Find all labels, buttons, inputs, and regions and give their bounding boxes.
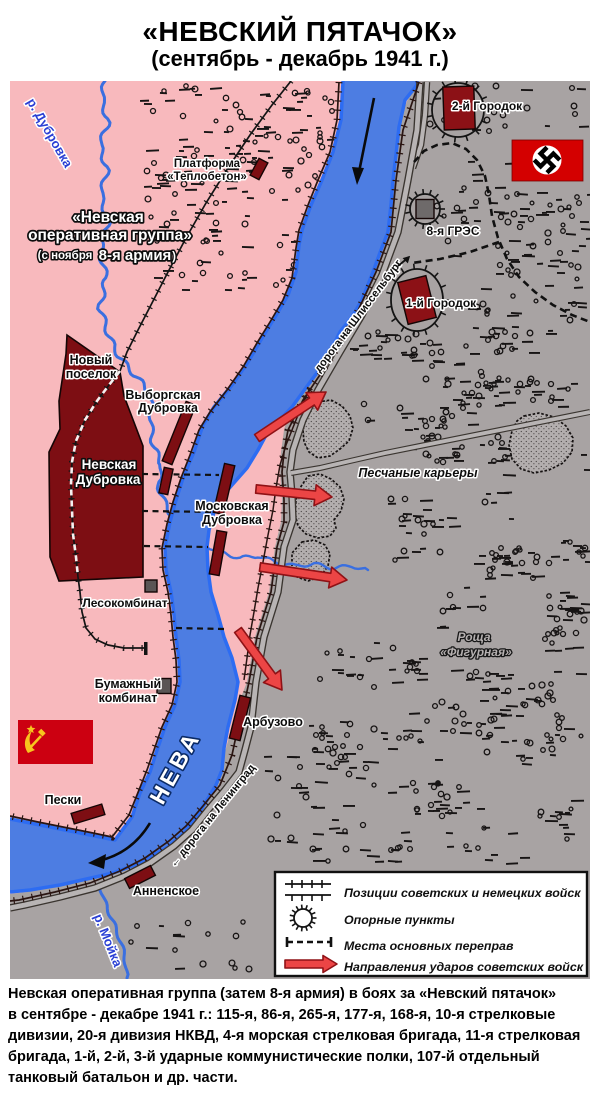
svg-text:8-я армия: 8-я армия [99,247,172,264]
svg-text:поселок: поселок [66,367,117,381]
svg-text:Пески: Пески [45,793,82,807]
svg-text:8-я ГРЭС: 8-я ГРЭС [426,224,479,238]
svg-text:Позиции советских и немецких в: Позиции советских и немецких войск [344,886,581,900]
svg-text:Арбузово: Арбузово [243,715,303,729]
svg-text:Опорные пункты: Опорные пункты [344,913,455,927]
svg-text:Выборгская: Выборгская [125,388,200,402]
svg-text:Роща: Роща [457,630,490,644]
svg-text:Платформа: Платформа [174,158,241,170]
svg-text:Дубровка: Дубровка [138,401,199,415]
svg-text:оперативная группа»: оперативная группа» [28,227,192,244]
svg-text:(с ноября: (с ноября [38,250,93,262]
svg-text:«Фигурная»: «Фигурная» [440,645,512,659]
svg-text:Дубровка: Дубровка [202,513,263,527]
svg-text:): ) [172,251,176,263]
svg-text:Бумажный: Бумажный [95,677,161,691]
svg-text:1-й Городок: 1-й Городок [406,296,477,310]
svg-text:Песчаные карьеры: Песчаные карьеры [358,466,478,480]
svg-text:Новый: Новый [70,353,113,367]
svg-text:2-й Городок: 2-й Городок [452,99,523,113]
svg-text:Анненское: Анненское [133,884,199,898]
svg-text:Места основных переправ: Места основных переправ [344,939,514,953]
svg-text:Лесокомбинат: Лесокомбинат [82,596,167,610]
svg-text:Дубровка: Дубровка [76,472,141,487]
svg-text:Направления ударов советских в: Направления ударов советских войск [344,960,584,974]
svg-text:комбинат: комбинат [99,691,158,705]
svg-text:«Невская: «Невская [72,209,144,226]
svg-text:Московская: Московская [195,499,268,513]
svg-text:«Теплобетон»: «Теплобетон» [167,171,247,183]
svg-text:Невская: Невская [82,457,137,472]
